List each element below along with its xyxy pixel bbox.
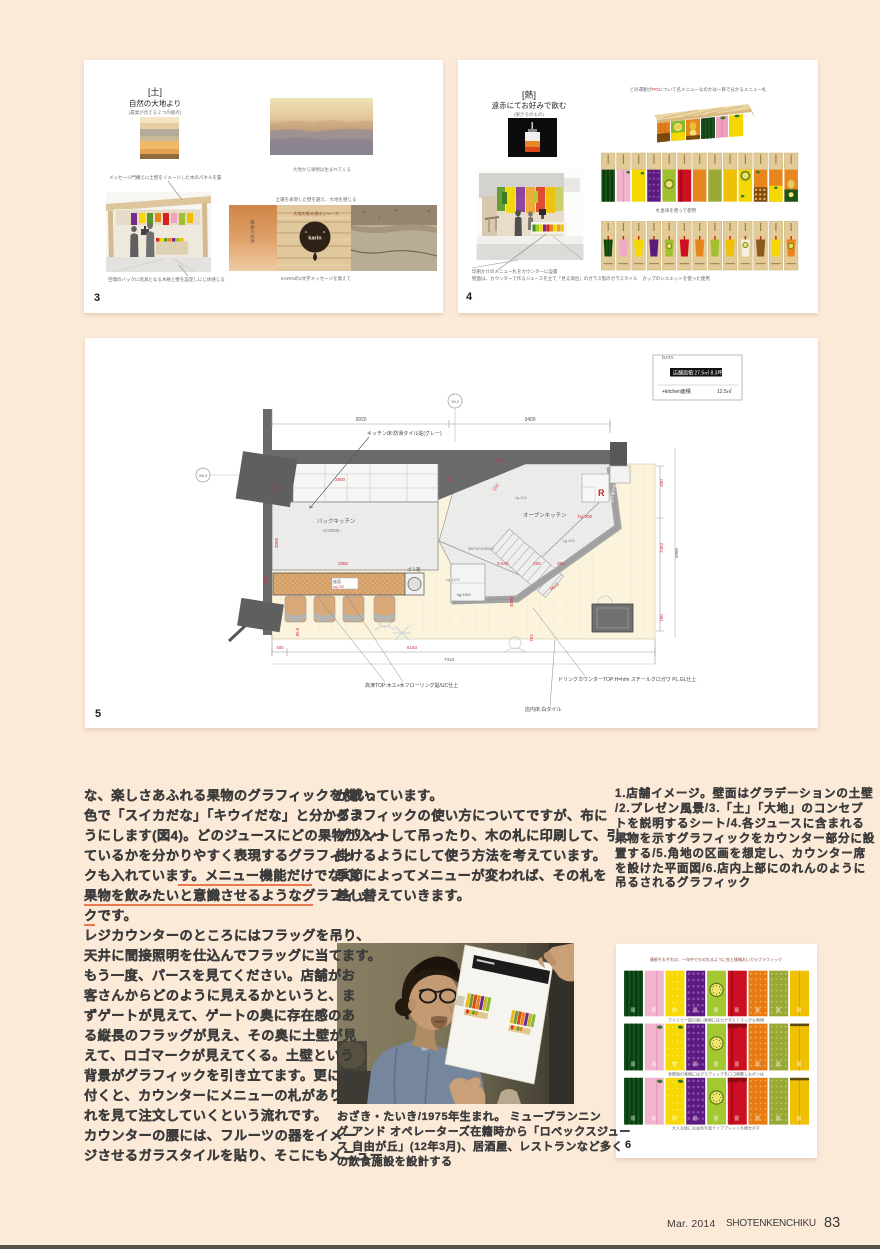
svg-text:バックキッチン: バックキッチン xyxy=(317,518,356,525)
svg-text:+kitchen面積: +kitchen面積 xyxy=(662,388,691,395)
svg-text:2800: 2800 xyxy=(335,477,346,482)
svg-text:200: 200 xyxy=(533,561,541,566)
svg-text:[熱]: [熱] xyxy=(522,89,536,100)
svg-text:高津TOP:木エ+木フローリング貼/UC仕上: 高津TOP:木エ+木フローリング貼/UC仕上 xyxy=(365,682,458,689)
svg-text:DATA: DATA xyxy=(662,355,673,360)
svg-text:メッセージ門構えに土壁をイメージした木のパネルを置: メッセージ門構えに土壁をイメージした木のパネルを置 xyxy=(109,174,222,181)
svg-text:札金串を使って使用: 札金串を使って使用 xyxy=(656,207,696,214)
svg-text:ファミリー園の高い果物にはカナダとトラッグも表現: ファミリー園の高い果物にはカナダとトラッグも表現 xyxy=(668,1017,764,1023)
svg-text:hg-700: hg-700 xyxy=(333,585,344,589)
svg-text:大人な彼には金色を放ナイフブレットれ様セボす: 大人な彼には金色を放ナイフブレットれ様セボす xyxy=(672,1125,760,1131)
svg-text:ゴミ箱: ゴミ箱 xyxy=(407,566,421,573)
svg-text:どの運動がPOについて名メニューなのかは一目で分かるメニュー: どの運動がPOについて名メニューなのかは一目で分かるメニュー札 xyxy=(630,86,767,93)
svg-text:篠根それぞれの、一年中でものれるように先と情緒おいガラブラフ: 篠根それぞれの、一年中でものれるように先と情緒おいガラブラフィック xyxy=(650,956,782,962)
svg-text:3000: 3000 xyxy=(274,537,279,548)
svg-text:hg-900: hg-900 xyxy=(578,514,593,519)
svg-text:karin: karin xyxy=(308,236,322,242)
svg-text:1480: 1480 xyxy=(494,458,505,463)
svg-text:6183: 6183 xyxy=(407,645,418,650)
svg-text:店内床:白タイル: 店内床:白タイル xyxy=(525,706,561,713)
svg-text:Y6.2: Y6.2 xyxy=(451,399,460,404)
svg-text:3400: 3400 xyxy=(524,417,535,423)
svg-text:hg-900: hg-900 xyxy=(515,496,527,500)
svg-text:3000: 3000 xyxy=(274,482,279,493)
svg-text:壁面は、カウンターで作るジュースを立て「見る演出」のガラス張: 壁面は、カウンターで作るジュースを立て「見る演出」のガラス張のガラスタイル xyxy=(472,275,638,282)
svg-text:5 540: 5 540 xyxy=(497,561,509,566)
svg-text:hg-800: hg-800 xyxy=(563,539,575,543)
svg-text:土壌を表現した壁を越え、大地を感じる: 土壌を表現した壁を越え、大地を感じる xyxy=(276,196,357,203)
svg-text:(果汁そのもの): (果汁そのもの) xyxy=(514,111,544,118)
svg-text:遠赤にてお好みで飲む: 遠赤にてお好みで飲む xyxy=(492,100,567,110)
svg-text:印刷かけのメニュー札をカウンターに設置: 印刷かけのメニュー札をカウンターに設置 xyxy=(472,268,558,275)
svg-text:(農業が見える２つの観点): (農業が見える２つの観点) xyxy=(129,109,182,116)
svg-text:X6.3: X6.3 xyxy=(199,473,208,478)
svg-text:大地の恵み満水ジュース: 大地の恵み満水ジュース xyxy=(293,210,339,217)
svg-text:7413: 7413 xyxy=(444,657,455,662)
svg-text:自然の大地より: 自然の大地より xyxy=(129,98,181,108)
svg-text:4000: 4000 xyxy=(509,596,514,607)
svg-text:85.5: 85.5 xyxy=(295,627,300,636)
svg-text:R: R xyxy=(598,488,605,498)
svg-text:[土]: [土] xyxy=(148,86,162,97)
svg-text:752: 752 xyxy=(529,634,534,642)
svg-text:ドリンクカウンターTOP:H=h/m スチールクロガワ PL: ドリンクカウンターTOP:H=h/m スチールクロガワ PL.GL仕上 xyxy=(558,676,696,683)
svg-text:大地から果物は生まれてくる: 大地から果物は生まれてくる xyxy=(293,166,351,173)
svg-text:400: 400 xyxy=(659,479,664,487)
svg-text:店舗面積:27.5㎡ 8.3坪: 店舗面積:27.5㎡ 8.3坪 xyxy=(673,370,722,377)
svg-text:KARINの2文字メッセージを発えて: KARINの2文字メッセージを発えて xyxy=(281,275,351,282)
svg-text:オープンキッチン: オープンキッチン xyxy=(523,512,567,519)
svg-text:hg-1100: hg-1100 xyxy=(446,578,460,582)
svg-text:400: 400 xyxy=(276,645,284,650)
svg-text:CH2600: CH2600 xyxy=(323,528,340,533)
svg-text:座面: 座面 xyxy=(333,578,341,584)
svg-text:空間のバックに装具となる木格と壁を設定しにじ体感じる: 空間のバックに装具となる木格と壁を設定しにじ体感じる xyxy=(108,276,225,283)
svg-text:38FNCH/900X: 38FNCH/900X xyxy=(468,546,494,551)
svg-text:12.5㎡: 12.5㎡ xyxy=(717,388,732,395)
svg-text:キッチン床:防滑タイル貼(グレー): キッチン床:防滑タイル貼(グレー) xyxy=(367,430,442,437)
svg-text:hg-1100: hg-1100 xyxy=(457,593,471,597)
svg-text:2850: 2850 xyxy=(338,561,349,566)
svg-text:140: 140 xyxy=(444,477,452,482)
svg-text:800: 800 xyxy=(557,561,565,566)
svg-text:760: 760 xyxy=(659,614,664,622)
svg-text:5985: 5985 xyxy=(674,547,679,558)
svg-text:季節毎の果物にはグラフィックをロゴ章敷しもボンは: 季節毎の果物にはグラフィックをロゴ章敷しもボンは xyxy=(668,1071,764,1077)
svg-text:職銀の相律: 職銀の相律 xyxy=(250,219,256,245)
svg-text:カップのシルエットを使った使用: カップのシルエットを使った使用 xyxy=(642,275,710,282)
svg-text:3920: 3920 xyxy=(355,417,366,423)
svg-text:1402: 1402 xyxy=(263,574,268,585)
svg-text:7463: 7463 xyxy=(659,542,664,553)
